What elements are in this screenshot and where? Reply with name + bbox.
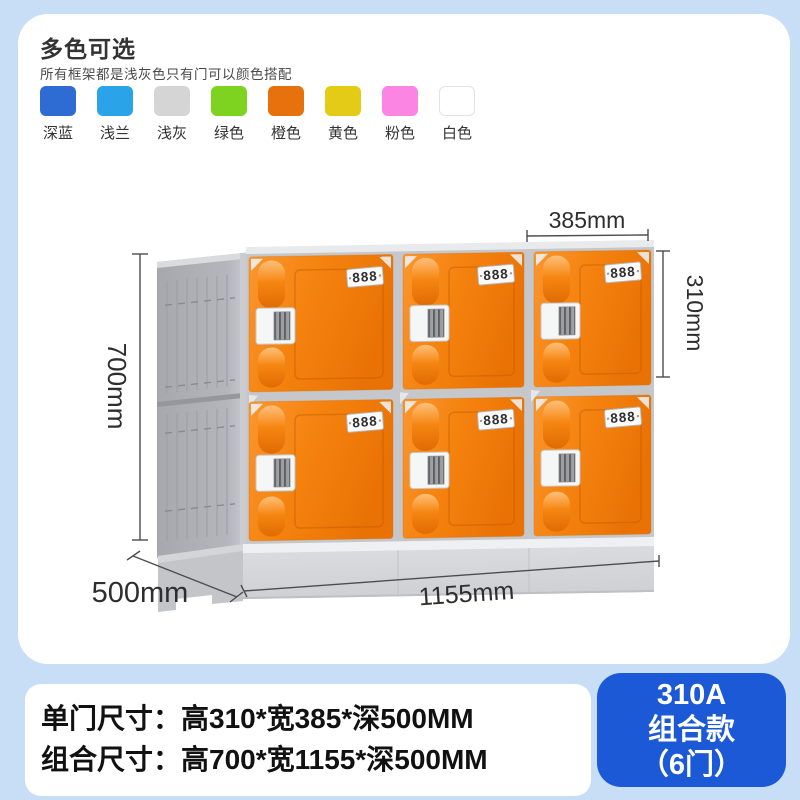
locker-door: 888 bbox=[403, 252, 524, 389]
product-spec-image: 多色可选 所有框架都是浅灰色只有门可以颜色搭配 深蓝 浅兰 浅灰 绿色 橙色 黄… bbox=[0, 0, 800, 800]
locker-door: 888 bbox=[403, 397, 524, 538]
door-handle bbox=[410, 305, 449, 342]
door-handle bbox=[410, 452, 449, 489]
svg-text:888: 888 bbox=[352, 268, 379, 285]
hinge-cover bbox=[412, 258, 439, 306]
svg-text:888: 888 bbox=[610, 264, 637, 281]
dim-label-total-height: 700mm bbox=[102, 343, 132, 430]
dim-label-depth: 500mm bbox=[92, 577, 189, 609]
hinge-cover bbox=[258, 496, 285, 536]
hinge-cover bbox=[258, 347, 285, 387]
door-number-plate: 888 bbox=[604, 262, 641, 283]
door-handle bbox=[256, 308, 295, 345]
locker-door: 888 bbox=[534, 395, 651, 536]
hinge-cover bbox=[412, 345, 439, 385]
hinge-cover bbox=[258, 405, 285, 453]
door-number-plate: 888 bbox=[346, 411, 383, 432]
hinge-cover bbox=[543, 491, 570, 531]
door-number-plate: 888 bbox=[604, 407, 641, 428]
hinge-cover bbox=[543, 400, 570, 448]
model-type: 组合款 bbox=[648, 713, 735, 748]
door-handle bbox=[541, 303, 580, 340]
hinge-cover bbox=[412, 403, 439, 451]
locker-door: 888 bbox=[534, 250, 651, 387]
locker-door: 888 bbox=[249, 399, 393, 541]
svg-text:888: 888 bbox=[610, 409, 637, 426]
dimension-total-height bbox=[132, 254, 148, 540]
door-number-plate: 888 bbox=[477, 264, 514, 285]
hinge-cover bbox=[543, 342, 570, 382]
door-handle bbox=[256, 455, 295, 492]
dim-label-total-width: 1155mm bbox=[418, 577, 515, 612]
svg-text:888: 888 bbox=[483, 266, 510, 283]
dim-label-single-height: 310mm bbox=[682, 275, 708, 352]
door-number-plate: 888 bbox=[477, 409, 514, 430]
svg-text:888: 888 bbox=[483, 411, 510, 428]
model-number: 310A bbox=[657, 678, 726, 713]
locker-front: 888 888 bbox=[243, 240, 654, 599]
spec-single-door: 单门尺寸：高310*宽385*深500MM bbox=[41, 698, 591, 739]
model-doors: （6门） bbox=[640, 748, 743, 783]
locker-door: 888 bbox=[249, 254, 393, 392]
hinge-cover bbox=[258, 260, 285, 308]
dimension-single-height bbox=[656, 251, 670, 377]
door-number-plate: 888 bbox=[346, 266, 383, 287]
spec-box: 单门尺寸：高310*宽385*深500MM 组合尺寸：高700*宽1155*深5… bbox=[25, 684, 591, 796]
model-badge: 310A 组合款 （6门） bbox=[597, 673, 786, 787]
hinge-cover bbox=[412, 494, 439, 534]
dim-label-single-width: 385mm bbox=[549, 207, 626, 233]
spec-combined: 组合尺寸：高700*宽1155*深500MM bbox=[41, 739, 591, 780]
door-handle bbox=[541, 450, 580, 487]
locker-side-panel bbox=[157, 253, 246, 558]
svg-text:888: 888 bbox=[352, 413, 379, 430]
hinge-cover bbox=[543, 255, 570, 303]
